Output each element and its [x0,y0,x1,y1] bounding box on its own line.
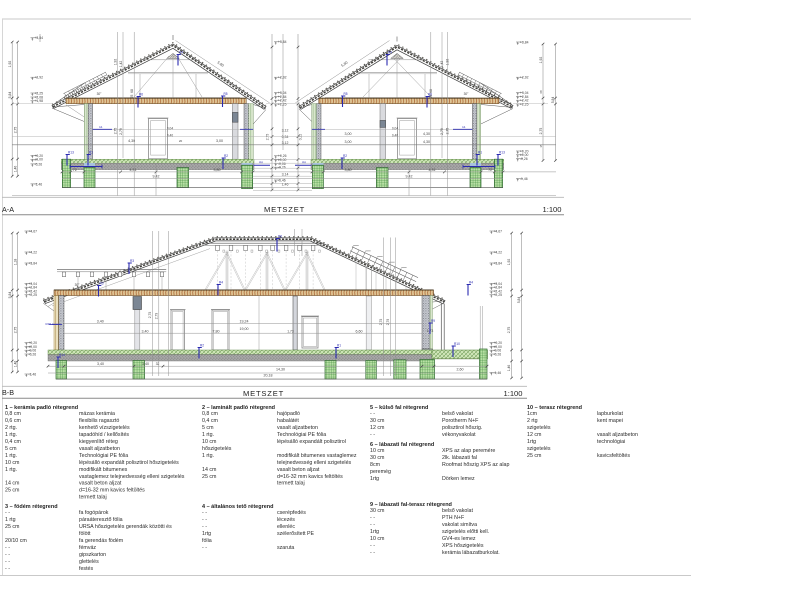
svg-text:- -: - - [5,510,10,516]
svg-text:szigetelés: szigetelés [527,425,551,431]
svg-text:szaruta: szaruta [277,545,294,551]
svg-text:0,12: 0,12 [299,134,303,141]
svg-text:B-B: B-B [2,388,14,397]
svg-text:2,75: 2,75 [446,128,450,135]
svg-text:habalátét: habalátét [277,418,299,424]
svg-text:3,00: 3,00 [345,140,352,144]
svg-text:d=16-32 mm kavics feltöltés: d=16-32 mm kavics feltöltés [79,488,145,494]
svg-text:- -: - - [370,550,375,556]
svg-text:- -: - - [5,566,10,572]
svg-text:- -: - - [202,524,207,530]
svg-text:1rtg: 1rtg [202,531,211,537]
svg-text:14 cm: 14 cm [202,467,217,473]
svg-text:A-A: A-A [2,205,14,214]
svg-text:1,92: 1,92 [446,59,450,66]
svg-text:30 cm: 30 cm [370,508,385,514]
svg-text:PTH N+F: PTH N+F [442,515,465,521]
svg-text:vasalt beton aljzat: vasalt beton aljzat [277,467,320,473]
svg-text:6 – lábazati fal rétegrend: 6 – lábazati fal rétegrend [370,442,434,448]
svg-text:1:100: 1:100 [504,389,523,398]
svg-text:R2: R2 [200,344,204,348]
svg-text:+4,22: +4,22 [493,250,502,254]
svg-text:Technológiai PE fólia: Technológiai PE fólia [277,432,326,438]
svg-text:XPS hőszigetelés: XPS hőszigetelés [442,543,484,549]
svg-text:R1: R1 [337,344,341,348]
svg-text:5 cm: 5 cm [5,446,17,452]
svg-text:R4: R4 [388,51,392,55]
svg-text:+2,25: +2,25 [493,293,502,297]
svg-text:- -: - - [202,545,207,551]
svg-text:1,42: 1,42 [119,61,123,68]
svg-text:R4: R4 [179,51,183,55]
svg-text:Porotherm N+F: Porotherm N+F [442,418,479,424]
svg-text:vakolat simítva: vakolat simítva [442,522,477,528]
svg-text:30°: 30° [75,283,81,287]
svg-text:- -: - - [370,522,375,528]
svg-text:25: 25 [130,95,134,99]
svg-text:peremég: peremég [370,469,391,475]
svg-text:+2,92: +2,92 [278,76,287,80]
svg-text:2,75: 2,75 [539,128,543,135]
svg-text:kenhető vízszigetelés: kenhető vízszigetelés [79,425,130,431]
svg-text:vastaglemez telejnedvesség ell: vastaglemez telejnedvesség elleni sziget… [79,474,185,480]
svg-text:modifikált bitumenes: modifikált bitumenes [79,467,128,473]
svg-text:72: 72 [73,168,77,172]
svg-text:XPS az alap peremére: XPS az alap peremére [442,448,495,454]
svg-text:2 rtg: 2 rtg [527,418,538,424]
svg-text:2lk. lábazati fal: 2lk. lábazati fal [442,455,477,461]
svg-text:R4: R4 [219,281,223,285]
svg-text:2,75: 2,75 [148,312,152,319]
svg-text:3,40: 3,40 [142,329,149,333]
svg-text:polisztirol hőszig.: polisztirol hőszig. [442,425,482,431]
svg-text:R3: R3 [100,282,104,286]
svg-text:+3,84: +3,84 [278,40,287,44]
svg-text:10 cm: 10 cm [370,448,385,454]
svg-text:20,18: 20,18 [264,373,273,377]
svg-text:-1,46: -1,46 [28,372,36,376]
svg-text:- -: - - [5,552,10,558]
svg-text:0,40: 0,40 [167,134,173,138]
svg-text:- -: - - [370,543,375,549]
svg-text:0,04: 0,04 [392,127,398,131]
svg-text:ellenléc: ellenléc [277,524,295,530]
svg-text:hajópadló: hajópadló [277,411,300,417]
svg-text:fa fogópárok: fa fogópárok [79,510,109,516]
svg-text:-1,46: -1,46 [34,182,42,186]
svg-text:25 cm: 25 cm [5,488,20,494]
svg-text:+4,22: +4,22 [28,250,37,254]
svg-text:2,75: 2,75 [507,327,511,334]
svg-text:kavicsfeltöltés: kavicsfeltöltés [597,453,630,459]
svg-text:5 – külső fal rétegrend: 5 – külső fal rétegrend [370,405,428,411]
svg-text:R10: R10 [454,342,460,346]
svg-text:25 cm: 25 cm [527,453,542,459]
svg-text:0,04: 0,04 [167,127,173,131]
svg-text:termett talaj: termett talaj [277,481,305,487]
svg-text:19,24: 19,24 [240,319,249,323]
svg-text:3,40: 3,40 [142,362,149,366]
svg-text:1,46: 1,46 [13,166,17,173]
svg-text:fölött: fölött [79,531,91,537]
svg-text:4,30: 4,30 [423,140,430,144]
svg-text:2,75: 2,75 [113,128,117,135]
svg-text:2,75: 2,75 [13,127,17,134]
svg-text:R6: R6 [139,93,143,97]
svg-text:+3,84: +3,84 [520,40,529,44]
svg-text:vasalt aljzatbeton: vasalt aljzatbeton [277,425,318,431]
svg-text:+1,98: +1,98 [34,99,43,103]
svg-text:GV4-es lemez: GV4-es lemez [442,536,476,542]
svg-text:3,14: 3,14 [282,173,289,177]
svg-text:Roofmat hőszig XPS az alap: Roofmat hőszig XPS az alap [442,462,509,468]
svg-text:- -: - - [370,411,375,417]
svg-text:-1,46: -1,46 [520,177,528,181]
svg-text:3,12: 3,12 [282,129,289,133]
svg-text:30°: 30° [97,92,103,96]
svg-text:fémváz: fémváz [79,545,96,551]
svg-text:2 – laminált padló rétegrend: 2 – laminált padló rétegrend [202,405,275,411]
svg-text:3,80: 3,80 [214,168,221,172]
svg-text:-0,26: -0,26 [493,352,501,356]
svg-text:+3,84: +3,84 [28,261,37,265]
svg-text:-0,26: -0,26 [520,157,528,161]
svg-text:kent mapei: kent mapei [597,418,623,424]
svg-text:±0,00: ±0,00 [34,158,43,162]
svg-text:3 – födém rétegrend: 3 – födém rétegrend [5,504,58,510]
svg-text:30°: 30° [464,92,470,96]
svg-text:R6: R6 [428,93,432,97]
svg-text:vékonyvakolat: vékonyvakolat [442,432,476,438]
svg-text:+2,25: +2,25 [520,102,529,106]
svg-text:1rtg: 1rtg [370,476,379,482]
svg-text:4,30: 4,30 [423,132,430,136]
svg-text:0,8 cm: 0,8 cm [202,411,218,417]
svg-text:R2: R2 [343,154,347,158]
svg-text:68: 68 [130,89,134,93]
svg-text:1rtg: 1rtg [370,529,379,535]
svg-text:+3,84: +3,84 [34,36,43,40]
svg-text:6,60: 6,60 [356,329,363,333]
svg-text:1 rtg.: 1 rtg. [202,432,214,438]
svg-text:belső vakolat: belső vakolat [442,411,473,417]
svg-text:1,92: 1,92 [8,61,12,68]
svg-text:Dörken lemez: Dörken lemez [442,476,475,482]
svg-text:0,6 cm: 0,6 cm [5,418,21,424]
svg-text:0,8 cm: 0,8 cm [5,411,21,417]
svg-text:5,84: 5,84 [551,97,555,104]
svg-text:3,40: 3,40 [97,362,104,366]
svg-text:URSA hőszigetelés gerendák köz: URSA hőszigetelés gerendák közötti és [79,524,172,530]
svg-text:3,00: 3,00 [345,132,352,136]
svg-text:k1: k1 [462,125,466,129]
svg-text:termett talaj: termett talaj [79,495,107,501]
svg-text:5 cm: 5 cm [202,425,214,431]
svg-text:1,73: 1,73 [287,329,294,333]
svg-text:1:100: 1:100 [543,205,562,214]
svg-text:gipszkarton: gipszkarton [79,552,106,558]
svg-text:1rtg: 1rtg [527,439,536,445]
svg-text:3,12: 3,12 [282,141,289,145]
svg-text:vasalt aljzatbeton: vasalt aljzatbeton [597,432,638,438]
svg-text:R9: R9 [431,319,435,323]
svg-text:R15 terasz: R15 terasz [45,322,60,326]
svg-text:1,46: 1,46 [13,361,17,368]
svg-text:kerámia lábazatburkolat.: kerámia lábazatburkolat. [442,550,500,556]
svg-text:12 cm: 12 cm [527,432,542,438]
svg-text:- -: - - [202,517,207,523]
svg-text:+3,84: +3,84 [493,261,502,265]
svg-text:+4,67: +4,67 [493,229,502,233]
svg-text:szélerősített PE: szélerősített PE [277,531,315,537]
svg-text:szigetelés előtti kell.: szigetelés előtti kell. [442,529,489,535]
svg-text:4,31: 4,31 [130,168,137,172]
svg-text:5,84: 5,84 [517,297,521,304]
svg-text:-0,26: -0,26 [28,352,36,356]
svg-text:-0,26: -0,26 [278,166,286,170]
svg-text:R6: R6 [278,235,282,239]
svg-text:1 rtg.: 1 rtg. [5,467,17,473]
svg-text:R8: R8 [259,161,263,165]
svg-text:d=16-32 mm kavics feltöltés: d=16-32 mm kavics feltöltés [277,474,343,480]
svg-text:2,75: 2,75 [266,134,270,141]
svg-text:2 rtg.: 2 rtg. [5,425,17,431]
svg-text:tapadóhíd / kellősítés: tapadóhíd / kellősítés [79,432,129,438]
svg-text:kiegyenlítő réteg: kiegyenlítő réteg [79,439,118,445]
svg-text:3,00: 3,00 [216,139,223,143]
svg-text:METSZET: METSZET [243,389,284,398]
svg-text:vasalt aljzatbeton: vasalt aljzatbeton [79,446,120,452]
svg-text:+4,67: +4,67 [28,229,37,233]
svg-text:1 rtg.: 1 rtg. [5,432,17,438]
svg-text:R1: R1 [89,151,93,155]
svg-text:R5: R5 [344,92,348,96]
svg-text:2,79: 2,79 [154,313,158,320]
svg-text:- -: - - [370,432,375,438]
svg-text:5,84: 5,84 [8,292,12,299]
svg-text:2,60: 2,60 [457,367,464,371]
svg-text:8cm: 8cm [370,462,381,468]
svg-text:R3: R3 [130,259,134,263]
svg-text:2,79: 2,79 [119,128,123,135]
svg-text:5,84: 5,84 [8,92,12,99]
svg-text:4,31: 4,31 [429,168,436,172]
svg-text:R8: R8 [302,161,306,165]
svg-text:telejnedvesség elleni szigetel: telejnedvesség elleni szigetelés [277,460,352,466]
svg-text:hőszigetelés: hőszigetelés [202,446,232,452]
svg-text:1,46: 1,46 [507,365,511,372]
svg-text:szigetelés: szigetelés [527,446,551,452]
svg-text:mázas kerámia: mázas kerámia [79,411,115,417]
svg-text:3,80: 3,80 [345,168,352,172]
svg-text:9 – lábazati fal-terasz rétegr: 9 – lábazati fal-terasz rétegrend [370,502,452,508]
svg-text:1,46: 1,46 [282,183,289,187]
svg-text:flexibilis ragasztó: flexibilis ragasztó [79,418,119,424]
svg-text:4 – általános tető rétegrend: 4 – általános tető rétegrend [202,504,274,510]
svg-text:0,4 cm: 0,4 cm [202,418,218,424]
svg-text:R1: R1 [478,151,482,155]
svg-text:+2,92: +2,92 [520,76,529,80]
svg-text:1,18: 1,18 [13,259,17,266]
svg-text:-1,46: -1,46 [493,371,501,375]
svg-text:1,92: 1,92 [113,59,117,66]
svg-text:72: 72 [488,168,492,172]
svg-text:lépésálló expandált polisztiro: lépésálló expandált polisztirol [277,439,346,445]
svg-text:+2,25: +2,25 [28,293,37,297]
svg-text:belső vakolat: belső vakolat [442,508,473,514]
svg-text:30 cm: 30 cm [370,418,385,424]
svg-text:cserépfedés: cserépfedés [277,510,306,516]
svg-text:7,80: 7,80 [213,329,220,333]
svg-text:fa gerendás födém: fa gerendás födém [79,538,124,544]
svg-text:14 cm: 14 cm [5,481,20,487]
svg-text:14,30: 14,30 [276,368,285,372]
svg-text:modifikált bitumenes vastaglem: modifikált bitumenes vastaglemez [277,453,357,459]
svg-text:R4: R4 [469,281,473,285]
svg-text:R2: R2 [224,154,228,158]
svg-text:10 – terasz rétegrend: 10 – terasz rétegrend [527,405,582,411]
svg-text:- -: - - [5,559,10,565]
svg-text:lapburkolat: lapburkolat [597,411,623,417]
svg-text:lécezés: lécezés [277,517,295,523]
svg-text:1 rtg.: 1 rtg. [202,453,214,459]
svg-text:0,4 cm: 0,4 cm [5,439,21,445]
svg-text:Technológiai PE fólia: Technológiai PE fólia [79,453,128,459]
svg-text:19,00: 19,00 [240,327,249,331]
svg-text:1 – kerámia padló rétegrend: 1 – kerámia padló rétegrend [5,405,78,411]
svg-text:- -: - - [5,545,10,551]
svg-text:20: 20 [179,139,183,143]
svg-text:68: 68 [539,90,543,94]
svg-text:1,92: 1,92 [507,259,511,266]
svg-text:2,79: 2,79 [440,128,444,135]
svg-text:+2,92: +2,92 [34,76,43,80]
svg-text:12 cm: 12 cm [370,425,385,431]
svg-text:10 cm: 10 cm [370,536,385,542]
svg-text:technológiai: technológiai [597,439,625,445]
svg-text:30 cm: 30 cm [370,455,385,461]
svg-text:1cm: 1cm [527,411,538,417]
svg-text:METSZET: METSZET [264,205,305,214]
svg-text:3,40: 3,40 [97,319,104,323]
svg-text:R13: R13 [68,151,74,155]
svg-text:- -: - - [370,515,375,521]
svg-text:lépésálló expandált polisztiro: lépésálló expandált polisztirol hősziget… [79,460,179,466]
svg-text:2,75: 2,75 [13,327,17,334]
svg-text:- -: - - [202,510,207,516]
svg-text:glettelés: glettelés [79,559,99,565]
svg-text:páraáteresztő fólia: páraáteresztő fólia [79,517,123,523]
svg-text:2,75: 2,75 [379,319,383,326]
svg-text:25 cm: 25 cm [5,524,20,530]
svg-text:festés: festés [79,566,93,572]
svg-text:R5: R5 [224,92,228,96]
svg-text:vasalt beton aljzat: vasalt beton aljzat [79,481,122,487]
svg-text:20/10 cm: 20/10 cm [5,538,27,544]
svg-text:R14: R14 [59,353,65,357]
svg-text:k1: k1 [99,125,103,129]
svg-text:10 cm: 10 cm [5,460,20,466]
svg-text:0,34: 0,34 [282,135,289,139]
svg-text:10 cm: 10 cm [202,439,217,445]
svg-text:2,79: 2,79 [386,319,390,326]
svg-text:1 rtg: 1 rtg [5,517,16,523]
svg-text:-0,26: -0,26 [34,162,42,166]
svg-text:R13: R13 [499,151,505,155]
svg-text:fólia: fólia [202,538,212,544]
svg-text:1,42: 1,42 [440,61,444,68]
svg-text:+2,25: +2,25 [278,102,287,106]
svg-text:1 rtg.: 1 rtg. [5,453,17,459]
svg-text:25 cm: 25 cm [202,474,217,480]
svg-text:1,92: 1,92 [539,57,543,64]
svg-text:0,40: 0,40 [392,134,398,138]
